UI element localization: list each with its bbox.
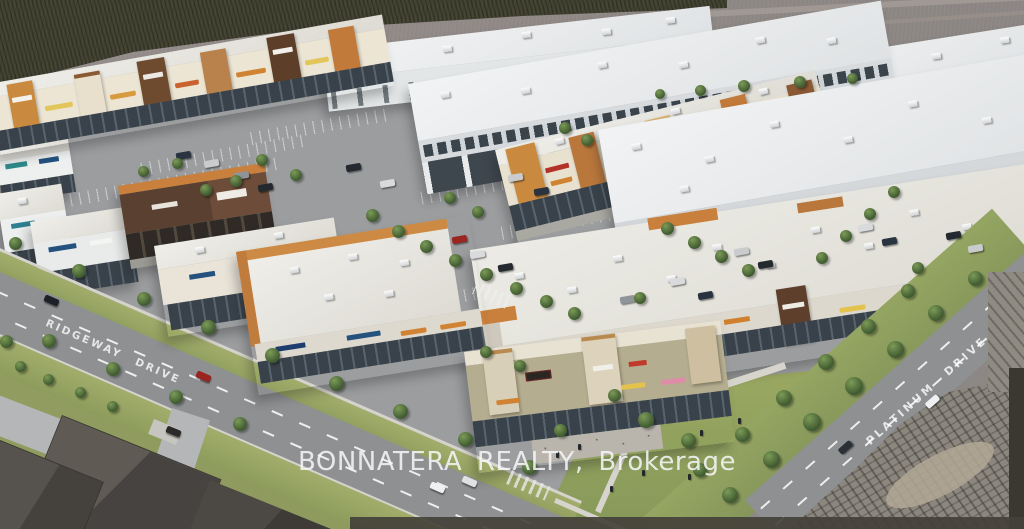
tree: [735, 427, 750, 442]
tree: [43, 374, 54, 385]
tree: [608, 389, 621, 402]
tree: [861, 319, 876, 334]
tree: [233, 417, 247, 431]
tree: [444, 192, 456, 204]
tree: [715, 250, 728, 263]
tree: [581, 134, 593, 146]
rooftop-unit: [666, 17, 676, 24]
tree: [803, 413, 821, 431]
tree: [634, 292, 646, 304]
tree: [200, 184, 212, 196]
tree: [201, 320, 216, 335]
tree: [845, 377, 863, 395]
rock-dark-edge-strip: [1009, 368, 1024, 529]
tree: [510, 282, 523, 295]
tree: [366, 209, 379, 222]
tree: [0, 335, 13, 348]
tree: [420, 240, 433, 253]
tree: [107, 401, 118, 412]
tree: [138, 166, 149, 177]
tree: [661, 222, 674, 235]
tree: [42, 334, 56, 348]
tree: [106, 362, 120, 376]
tree: [840, 230, 852, 242]
tree: [540, 295, 553, 308]
tree: [480, 346, 492, 358]
tree: [864, 208, 876, 220]
tree: [9, 237, 22, 250]
tree: [458, 432, 473, 447]
tree: [392, 225, 405, 238]
tree: [742, 264, 755, 277]
tree: [265, 348, 280, 363]
tree: [230, 175, 242, 187]
tree: [329, 376, 344, 391]
tree: [887, 341, 904, 358]
tree: [888, 186, 900, 198]
tree: [172, 158, 183, 169]
tree: [763, 451, 780, 468]
rooftop-unit: [442, 45, 452, 52]
tree: [137, 292, 151, 306]
tree: [554, 424, 567, 437]
tree: [655, 89, 665, 99]
person: [700, 430, 703, 436]
rooftop-unit: [521, 31, 531, 38]
tree: [681, 433, 696, 448]
tree: [738, 80, 750, 92]
tree: [928, 305, 944, 321]
tree: [695, 85, 706, 96]
tree: [816, 252, 828, 264]
tree: [794, 76, 806, 88]
tree: [968, 271, 983, 286]
tree: [901, 284, 915, 298]
tree: [568, 307, 581, 320]
tree: [688, 236, 701, 249]
tree: [393, 404, 408, 419]
tree: [169, 390, 183, 404]
person: [610, 486, 613, 492]
tree: [722, 487, 738, 503]
brokerage-watermark: BONNATERA REALTY, Brokerage: [298, 447, 736, 477]
aerial-rendering-canvas: RIDGEWAY DRIVE PLATINUM DRIVE BONNATERA …: [0, 0, 1024, 529]
tree: [72, 264, 86, 278]
tree: [514, 360, 526, 372]
tree: [256, 154, 268, 166]
tree: [559, 122, 571, 134]
tree: [847, 73, 858, 84]
tree: [472, 206, 484, 218]
person: [738, 418, 741, 424]
rooftop-unit: [601, 28, 611, 35]
tree: [912, 262, 924, 274]
tree: [776, 390, 792, 406]
rock-dark-bottom-band: [350, 517, 1024, 529]
tree: [638, 412, 654, 428]
tree: [449, 254, 462, 267]
tree: [480, 268, 493, 281]
tree: [15, 361, 26, 372]
tree: [75, 387, 86, 398]
tree: [818, 354, 834, 370]
tree: [290, 169, 302, 181]
